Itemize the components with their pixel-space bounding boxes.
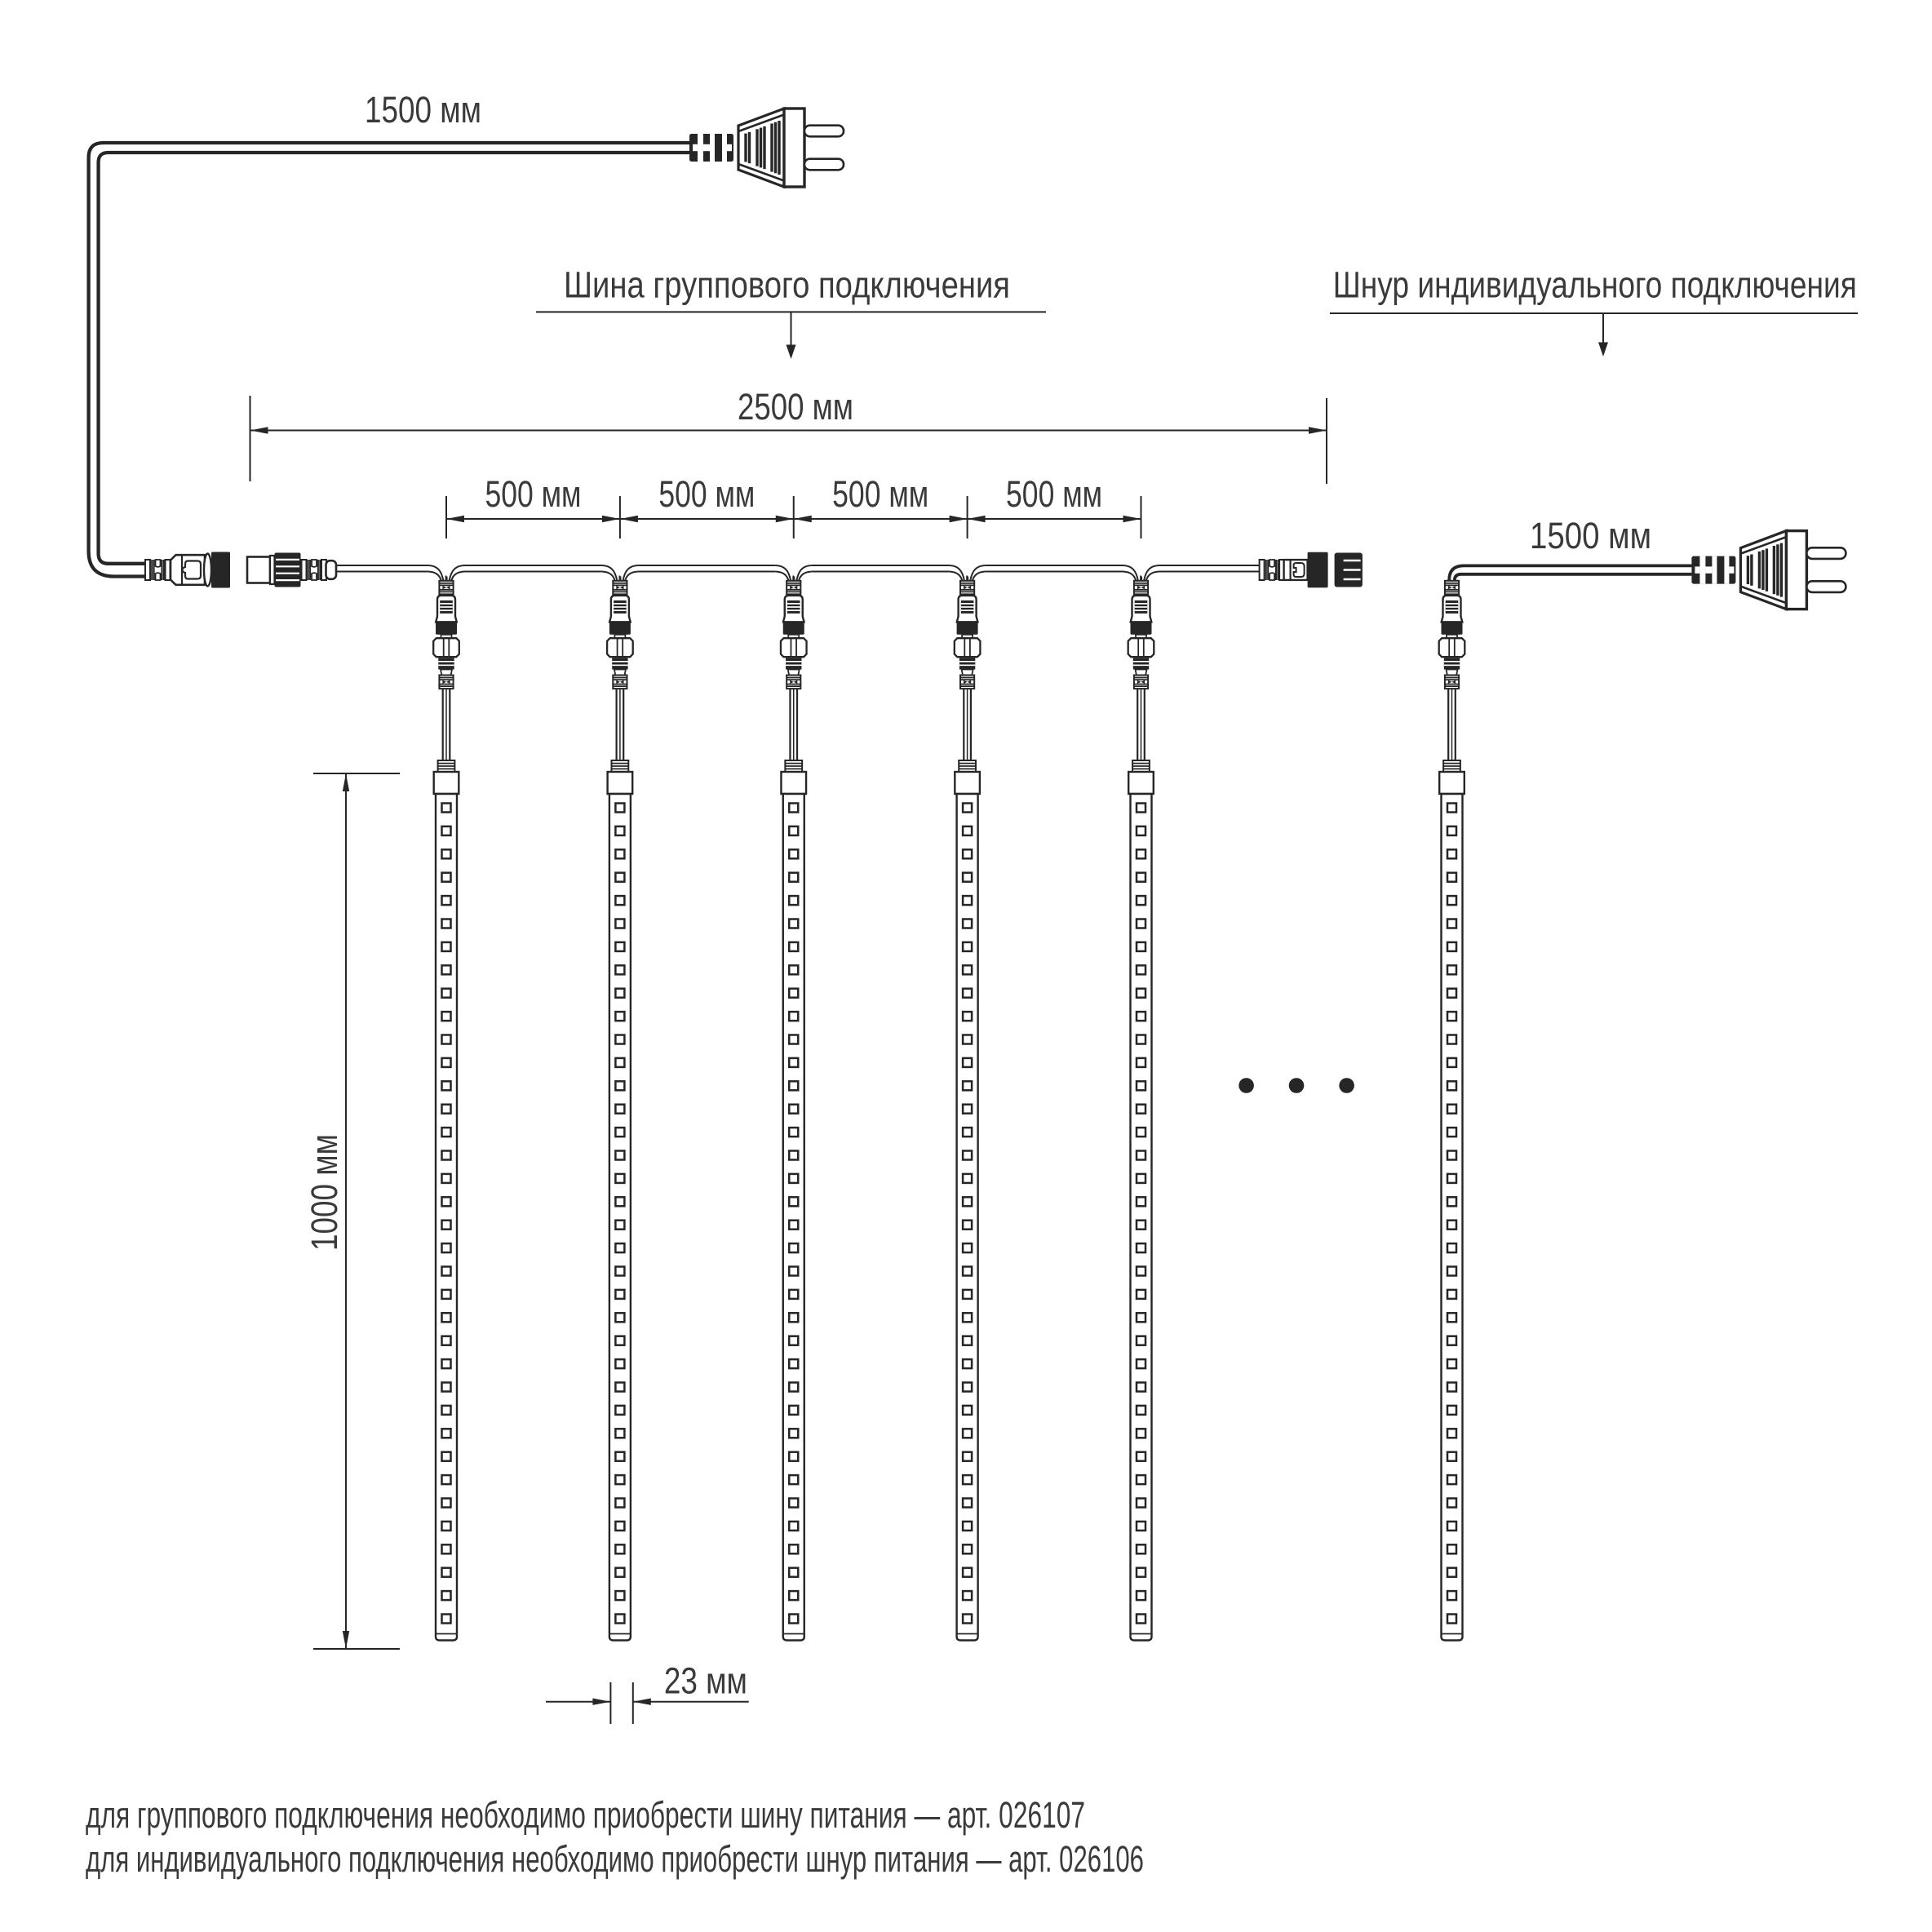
svg-text:Шнур индивидуального подключен: Шнур индивидуального подключения — [1333, 264, 1857, 306]
svg-text:2500 мм: 2500 мм — [738, 386, 853, 428]
svg-text:1500 мм: 1500 мм — [365, 89, 481, 131]
svg-text:для индивидуального подключени: для индивидуального подключения необходи… — [86, 1838, 1144, 1880]
svg-text:Шина группового подключения: Шина группового подключения — [564, 264, 1010, 306]
svg-text:1000 мм: 1000 мм — [304, 1134, 345, 1251]
svg-text:500 мм: 500 мм — [658, 473, 755, 515]
svg-text:500 мм: 500 мм — [485, 473, 581, 515]
svg-text:500 мм: 500 мм — [832, 473, 928, 515]
svg-text:500 мм: 500 мм — [1006, 473, 1102, 515]
svg-text:для группового подключения нео: для группового подключения необходимо пр… — [86, 1794, 1085, 1836]
svg-text:1500 мм: 1500 мм — [1530, 515, 1651, 556]
svg-text:23 мм: 23 мм — [664, 1660, 747, 1702]
